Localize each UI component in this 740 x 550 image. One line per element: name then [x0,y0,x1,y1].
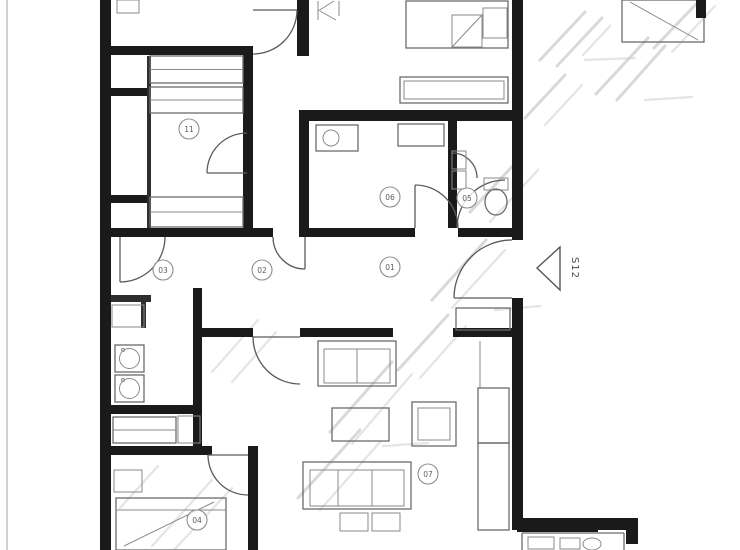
wall-segment [626,518,638,544]
wall-segment [193,288,202,446]
coffee-table-icon [332,408,389,441]
wall-segment [111,228,250,237]
room-label: 07 [418,464,438,484]
washing-machine-icon [115,345,144,372]
wall-segment [305,228,415,237]
wardrobe-icon [150,56,243,83]
photo-edge-artifact [6,0,8,550]
arrow-triangle-icon [537,247,560,290]
svg-text:02: 02 [257,266,267,275]
door-arc [273,237,305,269]
door-arc [207,133,247,173]
svg-text:04: 04 [192,516,202,525]
svg-text:03: 03 [158,266,168,275]
sink-icon [316,125,358,151]
door-arc [208,455,248,495]
entry-arrow: S12 [537,247,580,290]
wall-segment [458,228,512,237]
unit-label: S12 [569,257,580,279]
room-label: 05 [457,188,477,208]
wall-segment [309,110,512,121]
cabinet-icon [528,537,554,549]
svg-text:07: 07 [423,470,433,479]
wall-segment [111,195,148,203]
wall-segment [517,518,638,532]
wall-segment [512,0,523,240]
wall-segment [297,0,309,56]
sofa-icon [318,341,396,386]
floor-plan-image: S12 11 03 02 01 06 05 07 [0,0,740,550]
door-arc [253,10,297,54]
armchair-icon [412,402,456,446]
wall-segment [100,0,111,550]
room-label: 02 [252,260,272,280]
room-label: 04 [187,510,207,530]
washbasin-cabinet-icon [398,124,444,146]
wall-segment [299,110,309,237]
wall-segment [512,298,523,530]
wall-segment [202,328,253,337]
door-arc [253,337,300,384]
shelving-icon [478,341,509,530]
room-label: 03 [153,260,173,280]
wall-segment [111,88,148,96]
room-label: 11 [179,119,199,139]
svg-text:05: 05 [462,194,472,203]
wardrobe-icon [150,197,243,227]
wall-segment [248,446,258,550]
cabinet-icon [560,538,580,549]
dresser-icon [400,77,508,103]
furniture [112,0,706,550]
cabinet-icon [117,0,139,13]
bed-icon [406,1,508,48]
washing-machine-icon [115,375,144,402]
floor-plan-svg: S12 11 03 02 01 06 05 07 [0,0,740,550]
wardrobe-icon [150,87,243,113]
wall-niche [598,530,626,539]
wall-segment [100,446,212,455]
shelf-niche-icon [112,305,144,327]
wall-segment [100,46,253,55]
wall-segment [300,328,393,337]
svg-text:01: 01 [385,263,395,272]
room-label: 01 [380,257,400,277]
svg-text:11: 11 [184,125,194,134]
wall-segment [100,405,202,414]
chair-icon [318,1,339,20]
toilet-icon [583,538,601,550]
wall-segment [111,295,151,302]
wall-segment [243,46,253,237]
wardrobe-icon [113,417,176,443]
door-arc [454,240,512,298]
room-label: 06 [380,187,400,207]
svg-text:06: 06 [385,193,395,202]
sofa-icon [303,462,411,531]
